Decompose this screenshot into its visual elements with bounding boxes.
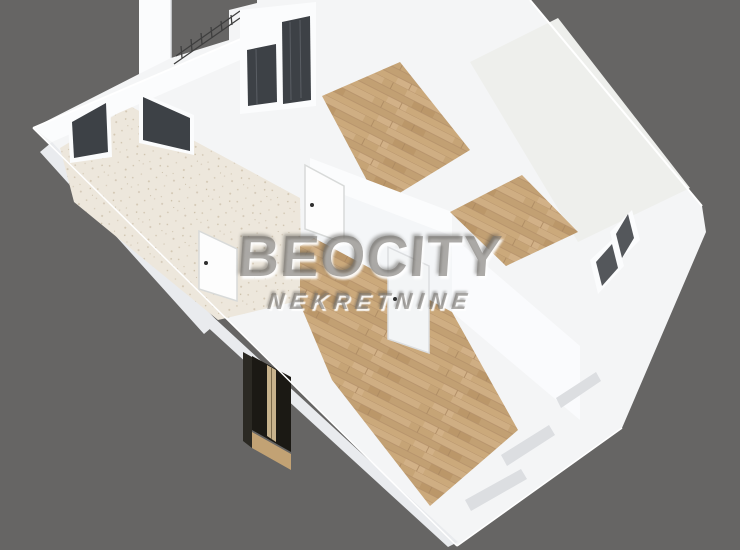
interior-door-3 [388, 247, 429, 353]
balcony-door [240, 2, 316, 114]
balcony-door-glass-left [247, 44, 277, 106]
door-handle [310, 203, 314, 207]
floor-plan-render [0, 0, 740, 550]
door-handle [393, 297, 397, 301]
balcony-door-glass-right [282, 16, 311, 104]
door-handle [204, 261, 208, 265]
entrance-door-recess [243, 352, 252, 448]
floor-plan-image: BEOCITY NEKRETNINE [0, 0, 740, 550]
